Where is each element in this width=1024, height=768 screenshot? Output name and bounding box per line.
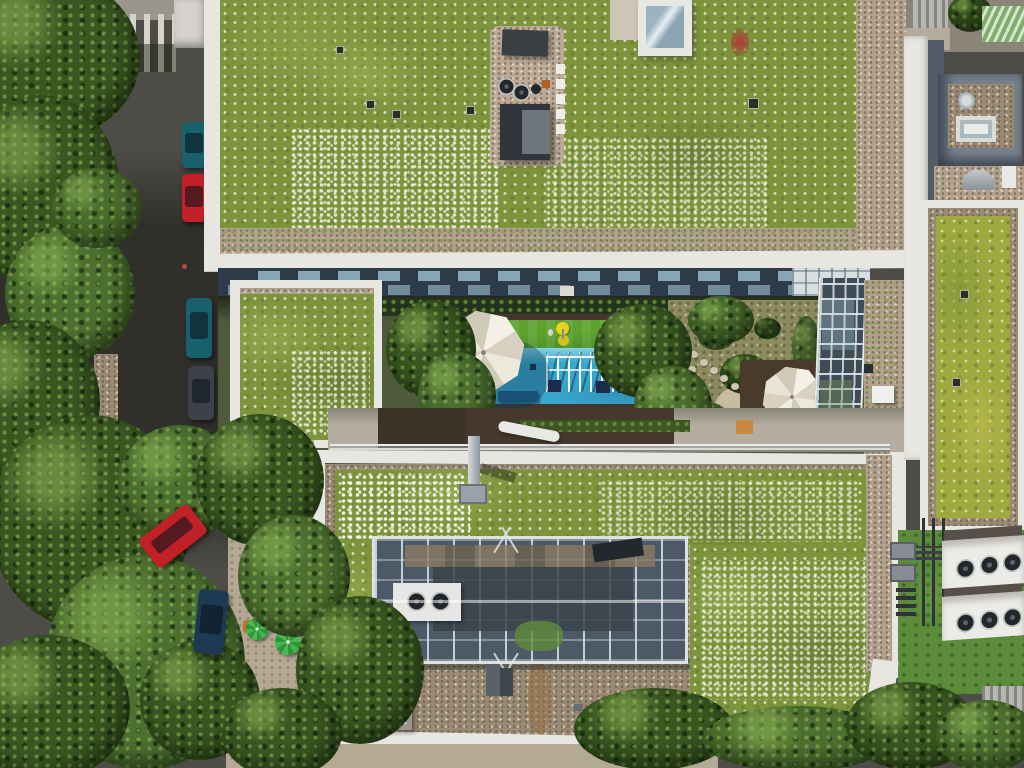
car-windshield (190, 312, 209, 338)
stepping-stone (720, 375, 728, 382)
equipment-box-top (522, 110, 550, 154)
curved-vent (962, 170, 994, 190)
red-foliage (731, 28, 749, 56)
orange-marker (542, 80, 550, 88)
roof-drain (952, 378, 961, 387)
penthouse-round-vent (958, 92, 975, 109)
orange-crate (736, 420, 753, 434)
umbrella-pole-cap (481, 350, 486, 355)
fan (980, 610, 999, 630)
small-ac-unit (890, 564, 916, 582)
parked-car-teal-1 (182, 122, 206, 168)
small-vent (531, 84, 541, 94)
chimney-cap (459, 484, 487, 504)
roof-drain (336, 46, 344, 54)
fan (956, 613, 975, 633)
skylight-glass (646, 6, 684, 48)
car-windshield (192, 379, 211, 403)
fan (1003, 552, 1022, 572)
waste-bins (486, 664, 500, 696)
white-slat (556, 109, 565, 119)
equipment-box (502, 29, 549, 57)
car-windshield (199, 604, 223, 634)
glass-wall-reflection (822, 300, 854, 350)
fan (980, 555, 999, 575)
parked-car-red-1 (182, 174, 206, 222)
roof-drain (466, 106, 475, 115)
side-green-roof (936, 216, 1010, 518)
car-windshield (185, 186, 202, 207)
fan (956, 559, 975, 579)
car-windshield (185, 133, 202, 153)
parked-car-teal-2 (186, 298, 212, 358)
waste-bins (500, 668, 513, 696)
fan (1003, 607, 1022, 627)
penthouse-skylight (956, 116, 996, 142)
stepping-stone (731, 383, 739, 390)
roof-drain (748, 98, 759, 109)
lower-roof-flowers (600, 480, 860, 542)
courtyard-shrub (688, 296, 754, 344)
green-fence-roof (982, 6, 1024, 42)
white-slat (556, 79, 565, 89)
street-tree (52, 168, 142, 248)
cafe-tree (222, 688, 342, 768)
stepping-stone (700, 359, 708, 366)
stepping-stone (710, 367, 718, 374)
play-pole (562, 329, 564, 339)
atrium-interior-plants (515, 621, 563, 651)
dry-vegetation-trail (528, 662, 550, 734)
chimney-pipe (468, 436, 480, 490)
roof-drain (392, 110, 401, 119)
dark-vent (864, 364, 873, 373)
round-bush (754, 318, 781, 339)
top-roof-gravel-right (856, 0, 906, 256)
corner-canopy-building (174, 0, 208, 48)
play-platform-box (548, 380, 561, 392)
bottom-tree (936, 700, 1024, 768)
walkway-deck-dark (378, 408, 476, 448)
hvac-fan-unit-1 (942, 535, 1024, 589)
round-vent (513, 84, 530, 101)
lower-roof-flowers (700, 560, 865, 700)
roof-drain (960, 290, 969, 299)
hvac-fan-unit-2 (942, 591, 1024, 641)
small-white-box (1002, 166, 1016, 188)
atrium-ridge-line (375, 600, 685, 603)
white-slat (556, 64, 565, 74)
aerial-photo (0, 0, 1024, 768)
umbrella-pole-cap (790, 395, 794, 399)
service-gravel-strip (866, 455, 892, 673)
roof-moss-patch (235, 0, 385, 95)
parked-car-gray (188, 366, 214, 420)
small-ac-unit (890, 542, 916, 560)
dark-bracket (896, 586, 916, 616)
white-slat (556, 124, 565, 134)
roof-drain (366, 100, 375, 109)
white-slat (556, 94, 565, 104)
pedestrian (189, 271, 193, 277)
pedestrian (182, 264, 187, 269)
ac-box (872, 386, 894, 403)
person-on-turf (548, 329, 553, 336)
